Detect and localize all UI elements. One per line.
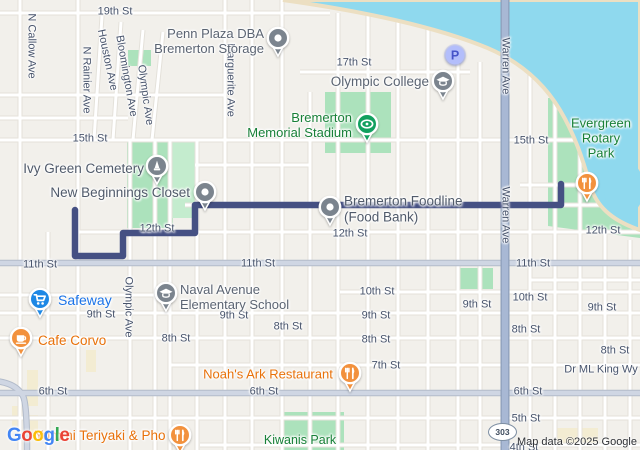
svg-text:P: P — [451, 49, 459, 63]
street-label-9th-st-21: 9th St — [87, 309, 116, 322]
street-label-15th-st-10: 15th St — [73, 133, 108, 146]
street-label-6th-st-33: 6th St — [39, 386, 68, 399]
street-label-olympic-ave-5: Olympic Ave — [135, 64, 156, 126]
street-label-n-rainier-ave-2: N Rainier Ave — [80, 46, 93, 113]
street-label-8th-st-30: 8th St — [601, 345, 630, 358]
street-label-11th-st-15: 11th St — [23, 259, 57, 272]
street-label-9th-st-23: 9th St — [362, 310, 391, 323]
poi-label-kiwanis-park[interactable]: Kiwanis Park — [264, 433, 336, 447]
street-label-9th-st-24: 9th St — [463, 299, 492, 312]
street-label-dr-ml-king-wy-32: Dr ML King Wy — [564, 364, 637, 377]
poi-label-ivy-green-cemetery[interactable]: Ivy Green Cemetery — [23, 161, 144, 177]
utensils-icon — [574, 171, 600, 203]
memorial-stadium-pin[interactable] — [354, 112, 380, 144]
poi-label-new-beginnings-closet[interactable]: New Beginnings Closet — [50, 185, 190, 201]
utensils-icon — [167, 423, 193, 450]
poi-label-bremerton-foodline[interactable]: Bremerton Foodline (Food Bank) — [344, 193, 463, 224]
poi-label-noahs-ark-restaurant[interactable]: Noah's Ark Restaurant — [203, 368, 333, 383]
evergreen-restaurant-pin[interactable] — [574, 171, 600, 203]
olympic-college-pin[interactable] — [430, 69, 456, 101]
street-label-warren-ave-8: Warren Ave — [499, 38, 512, 95]
naval-avenue-school-pin[interactable] — [153, 281, 179, 313]
google-logo-letter: e — [59, 425, 69, 446]
street-label-17th-st-7: 17th St — [337, 57, 372, 70]
school-icon — [153, 281, 179, 313]
poi-label-memorial-stadium[interactable]: Bremerton Memorial Stadium — [247, 111, 352, 141]
street-label-9th-st-25: 9th St — [588, 302, 617, 315]
street-label-8th-st-29: 8th St — [512, 324, 541, 337]
google-logo-letter: g — [44, 425, 55, 446]
utensils-icon — [337, 361, 363, 393]
poi-label-safeway[interactable]: Safeway — [58, 292, 112, 308]
monument-icon — [144, 154, 170, 186]
street-label-10th-st-19: 10th St — [360, 286, 395, 299]
school-icon — [430, 69, 456, 101]
street-label-15th-st-11: 15th St — [514, 135, 549, 148]
highway-303-shield: 303 — [488, 423, 517, 441]
street-label-12th-st-14: 12th St — [586, 225, 621, 238]
street-label-11th-st-17: 11th St — [516, 258, 550, 271]
street-label-6th-st-35: 6th St — [514, 386, 543, 399]
map-canvas[interactable]: 19th StN Callow AveN Rainier AveHouston … — [0, 0, 640, 450]
google-logo-letter: G — [7, 425, 21, 446]
penn-plaza-pin[interactable] — [265, 26, 291, 58]
street-label-5th-st-36: 5th St — [512, 413, 541, 426]
new-beginnings-closet-pin[interactable] — [192, 180, 218, 212]
dot-icon — [317, 195, 343, 227]
street-label-12th-st-13: 12th St — [333, 228, 368, 241]
map-attribution: Map data ©2025 Google — [517, 436, 637, 448]
street-label-7th-st-31: 7th St — [372, 360, 401, 373]
cup-icon — [8, 326, 34, 358]
street-label-8th-st-27: 8th St — [274, 321, 303, 334]
cart-icon — [27, 287, 53, 319]
poi-label-naval-avenue-school[interactable]: Naval Avenue Elementary School — [180, 283, 289, 313]
street-label-11th-st-16: 11th St — [241, 258, 275, 271]
street-label-12th-st-12: 12th St — [140, 223, 175, 236]
dot-icon — [265, 26, 291, 58]
street-label-8th-st-26: 8th St — [162, 333, 191, 346]
street-label-10th-st-20: 10th St — [513, 292, 548, 305]
noahs-ark-restaurant-pin[interactable] — [337, 361, 363, 393]
poi-label-evergreen-rotary-park[interactable]: Evergreen Rotary Park — [571, 117, 631, 162]
poi-label-cafe-corvo[interactable]: Cafe Corvo — [38, 333, 106, 349]
street-label-8th-st-28: 8th St — [362, 334, 391, 347]
safeway-pin[interactable] — [27, 287, 53, 319]
yummi-teriyaki-pho-pin[interactable] — [167, 423, 193, 450]
label-layer: 19th StN Callow AveN Rainier AveHouston … — [0, 0, 640, 450]
google-logo-letter: o — [32, 425, 43, 446]
poi-label-penn-plaza[interactable]: Penn Plaza DBA Bremerton Storage — [154, 27, 264, 57]
cafe-corvo-pin[interactable] — [8, 326, 34, 358]
google-logo[interactable]: Google — [7, 425, 69, 447]
street-label-n-callow-ave-1: N Callow Ave — [25, 13, 38, 78]
street-label-6th-st-34: 6th St — [250, 386, 279, 399]
bremerton-foodline-pin[interactable] — [317, 195, 343, 227]
ivy-green-cemetery-pin[interactable] — [144, 154, 170, 186]
highway-303-label: 303 — [495, 427, 509, 437]
street-label-olympic-ave-18: Olympic Ave — [122, 277, 135, 338]
google-logo-letter: o — [21, 425, 32, 446]
dot-icon — [192, 180, 218, 212]
poi-label-olympic-college[interactable]: Olympic College — [331, 74, 429, 90]
stadium-icon — [354, 112, 380, 144]
street-label-warren-ave-9: Warren Ave — [499, 187, 512, 244]
street-label-19th-st-0: 19th St — [98, 6, 133, 19]
